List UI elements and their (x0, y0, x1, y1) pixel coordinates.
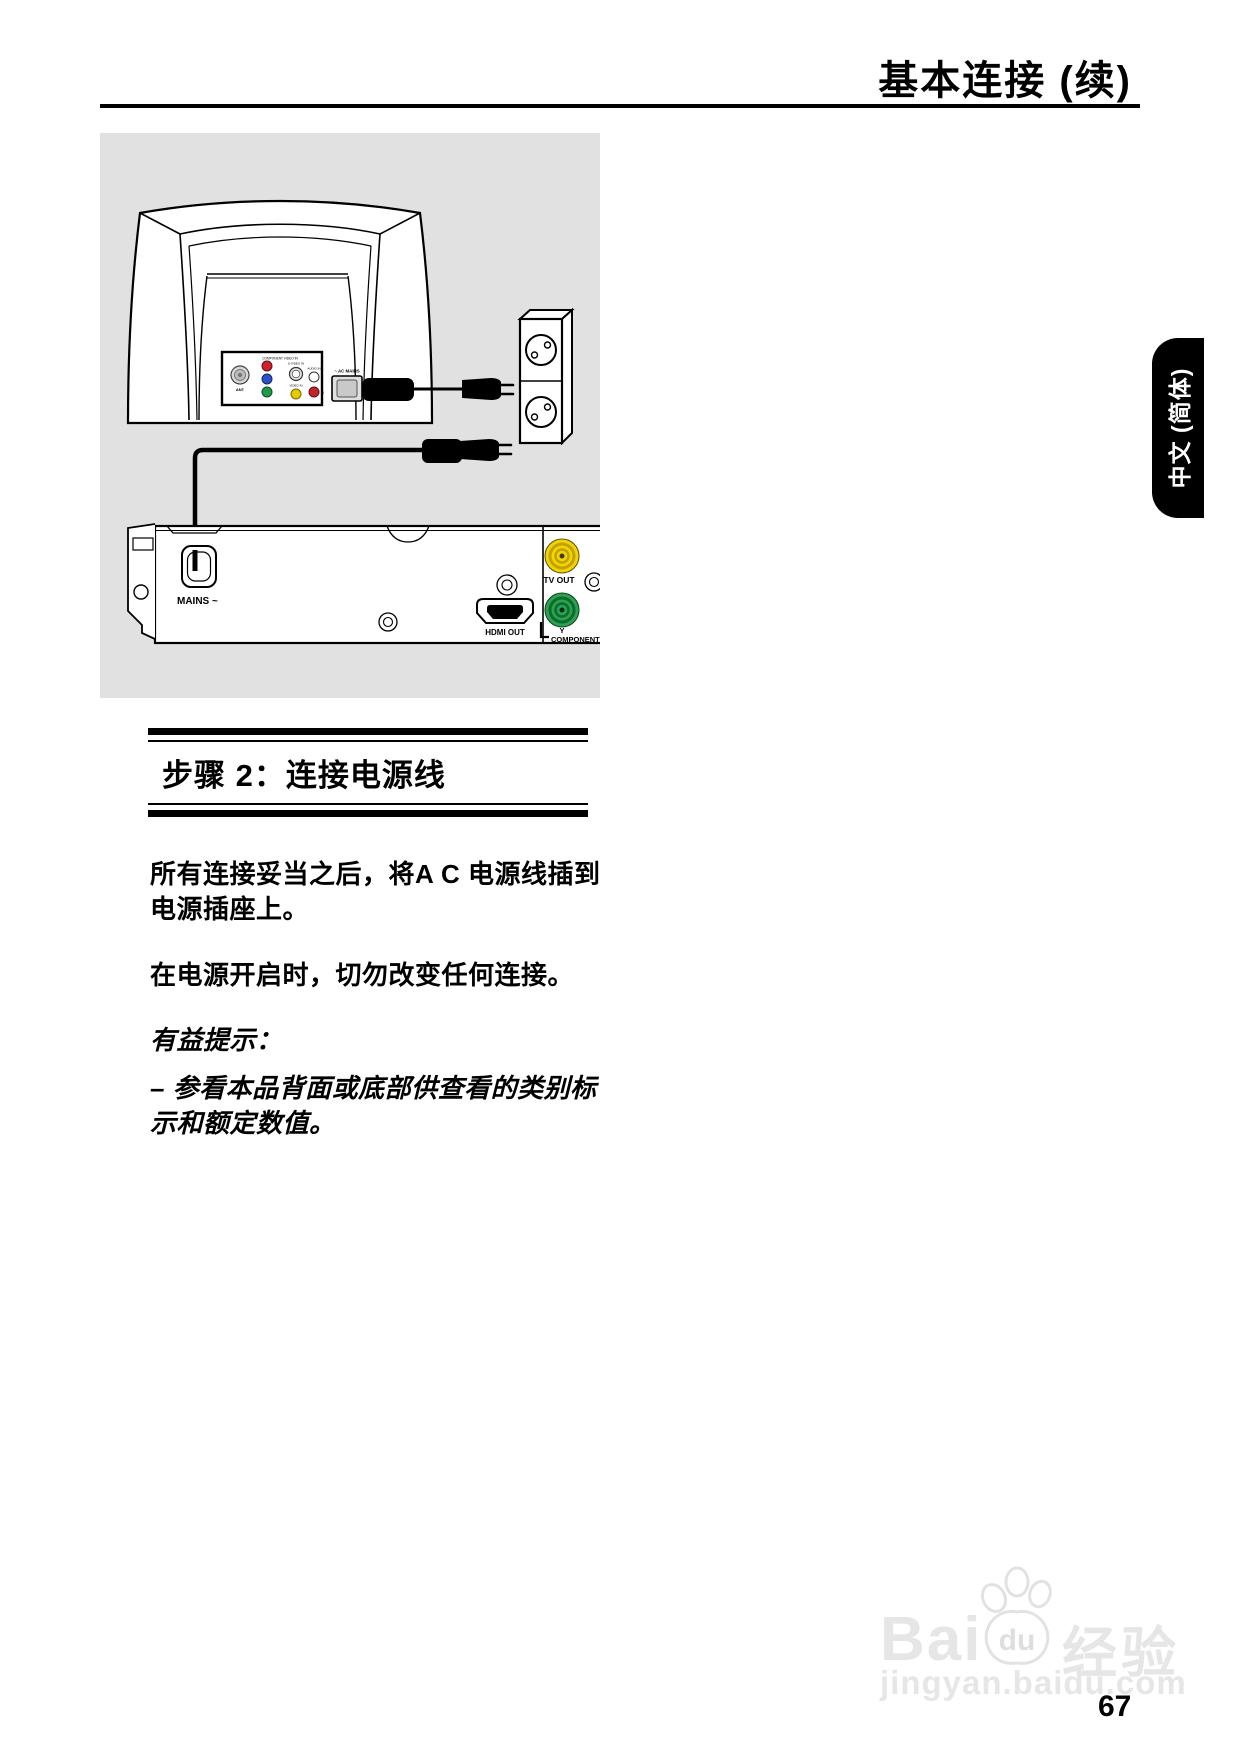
page-number: 67 (1098, 1690, 1131, 1724)
language-tab-label: 中文 (简体) (1161, 368, 1195, 489)
hint-body: – 参看本品背面或底部供查看的类别标 示和额定数值。 (150, 1071, 630, 1141)
ant-label: ANT (236, 387, 245, 392)
component-y-label: Y (559, 626, 564, 635)
header-rule-thick-top (148, 728, 588, 735)
paragraph-1-line-1: 所有连接妥当之后，将A C 电源线插到 (150, 857, 630, 892)
dvd-player: MAINS ~ HDMI OUT TV OUT (128, 524, 600, 644)
hint-title: 有益提示： (150, 1023, 630, 1058)
ac-mains-label: ~ AC MAINS (334, 369, 359, 374)
paragraph-2: 在电源开启时，切勿改变任何连接。 (150, 958, 630, 993)
component-green-jack-icon (262, 387, 272, 397)
connection-diagram-svg: COMPONENT VIDEO IN ANT S-VIDEO IN VIDEO … (100, 133, 600, 698)
watermark-url: jingyan.baidu.com (880, 1664, 1187, 1702)
video-yellow-jack-icon (291, 389, 301, 399)
connection-diagram: COMPONENT VIDEO IN ANT S-VIDEO IN VIDEO … (100, 133, 600, 698)
outlet-socket-top-icon (526, 335, 556, 365)
hdmi-out-label: HDMI OUT (485, 628, 525, 637)
title-rule (100, 104, 1140, 108)
s-video-label: S-VIDEO IN (288, 362, 304, 366)
component-blue-jack-icon (262, 374, 272, 384)
page-title: 基本连接 (续) (0, 48, 1132, 106)
power-plug-icon (462, 378, 501, 400)
video-in-label: VIDEO IN (289, 384, 302, 388)
audio-in-label: AUDIO IN (307, 367, 320, 371)
paragraph-1: 所有连接妥当之后，将A C 电源线插到 电源插座上。 (150, 857, 630, 927)
outlet-socket-bottom-icon (526, 397, 556, 427)
watermark-paw-icon: du (972, 1566, 1062, 1671)
paragraph-1-line-2: 电源插座上。 (150, 892, 630, 927)
audio-left-label: L (322, 376, 324, 380)
tv-connector-panel: COMPONENT VIDEO IN ANT S-VIDEO IN VIDEO … (222, 352, 325, 405)
manual-page: 基本连接 (续) COMPONENT (0, 0, 1240, 1754)
section-heading: 步骤 2：连接电源线 (148, 742, 588, 803)
watermark-du-text: du (999, 1624, 1036, 1657)
power-plug-icon (460, 439, 499, 461)
wall-outlet (520, 310, 572, 443)
mains-label: MAINS ~ (177, 596, 218, 607)
audio-right-jack-icon (309, 387, 319, 397)
component-red-jack-icon (262, 361, 272, 371)
header-rule-thick-bottom (148, 810, 588, 817)
language-tab: 中文 (简体) (1152, 338, 1204, 518)
audio-left-jack-icon (309, 372, 319, 382)
hint-line-1: – 参看本品背面或底部供查看的类别标 (150, 1071, 630, 1106)
component-label: COMPONENT (551, 635, 600, 644)
tv-ac-socket: ~ AC MAINS (332, 369, 362, 402)
section-header: 步骤 2：连接电源线 (148, 728, 588, 817)
tv-panel-heading-label: COMPONENT VIDEO IN (262, 357, 298, 361)
tv-power-cord (362, 378, 513, 401)
tv-out-label: TV OUT (543, 575, 575, 585)
hint-line-2: 示和额定数值。 (150, 1106, 630, 1141)
